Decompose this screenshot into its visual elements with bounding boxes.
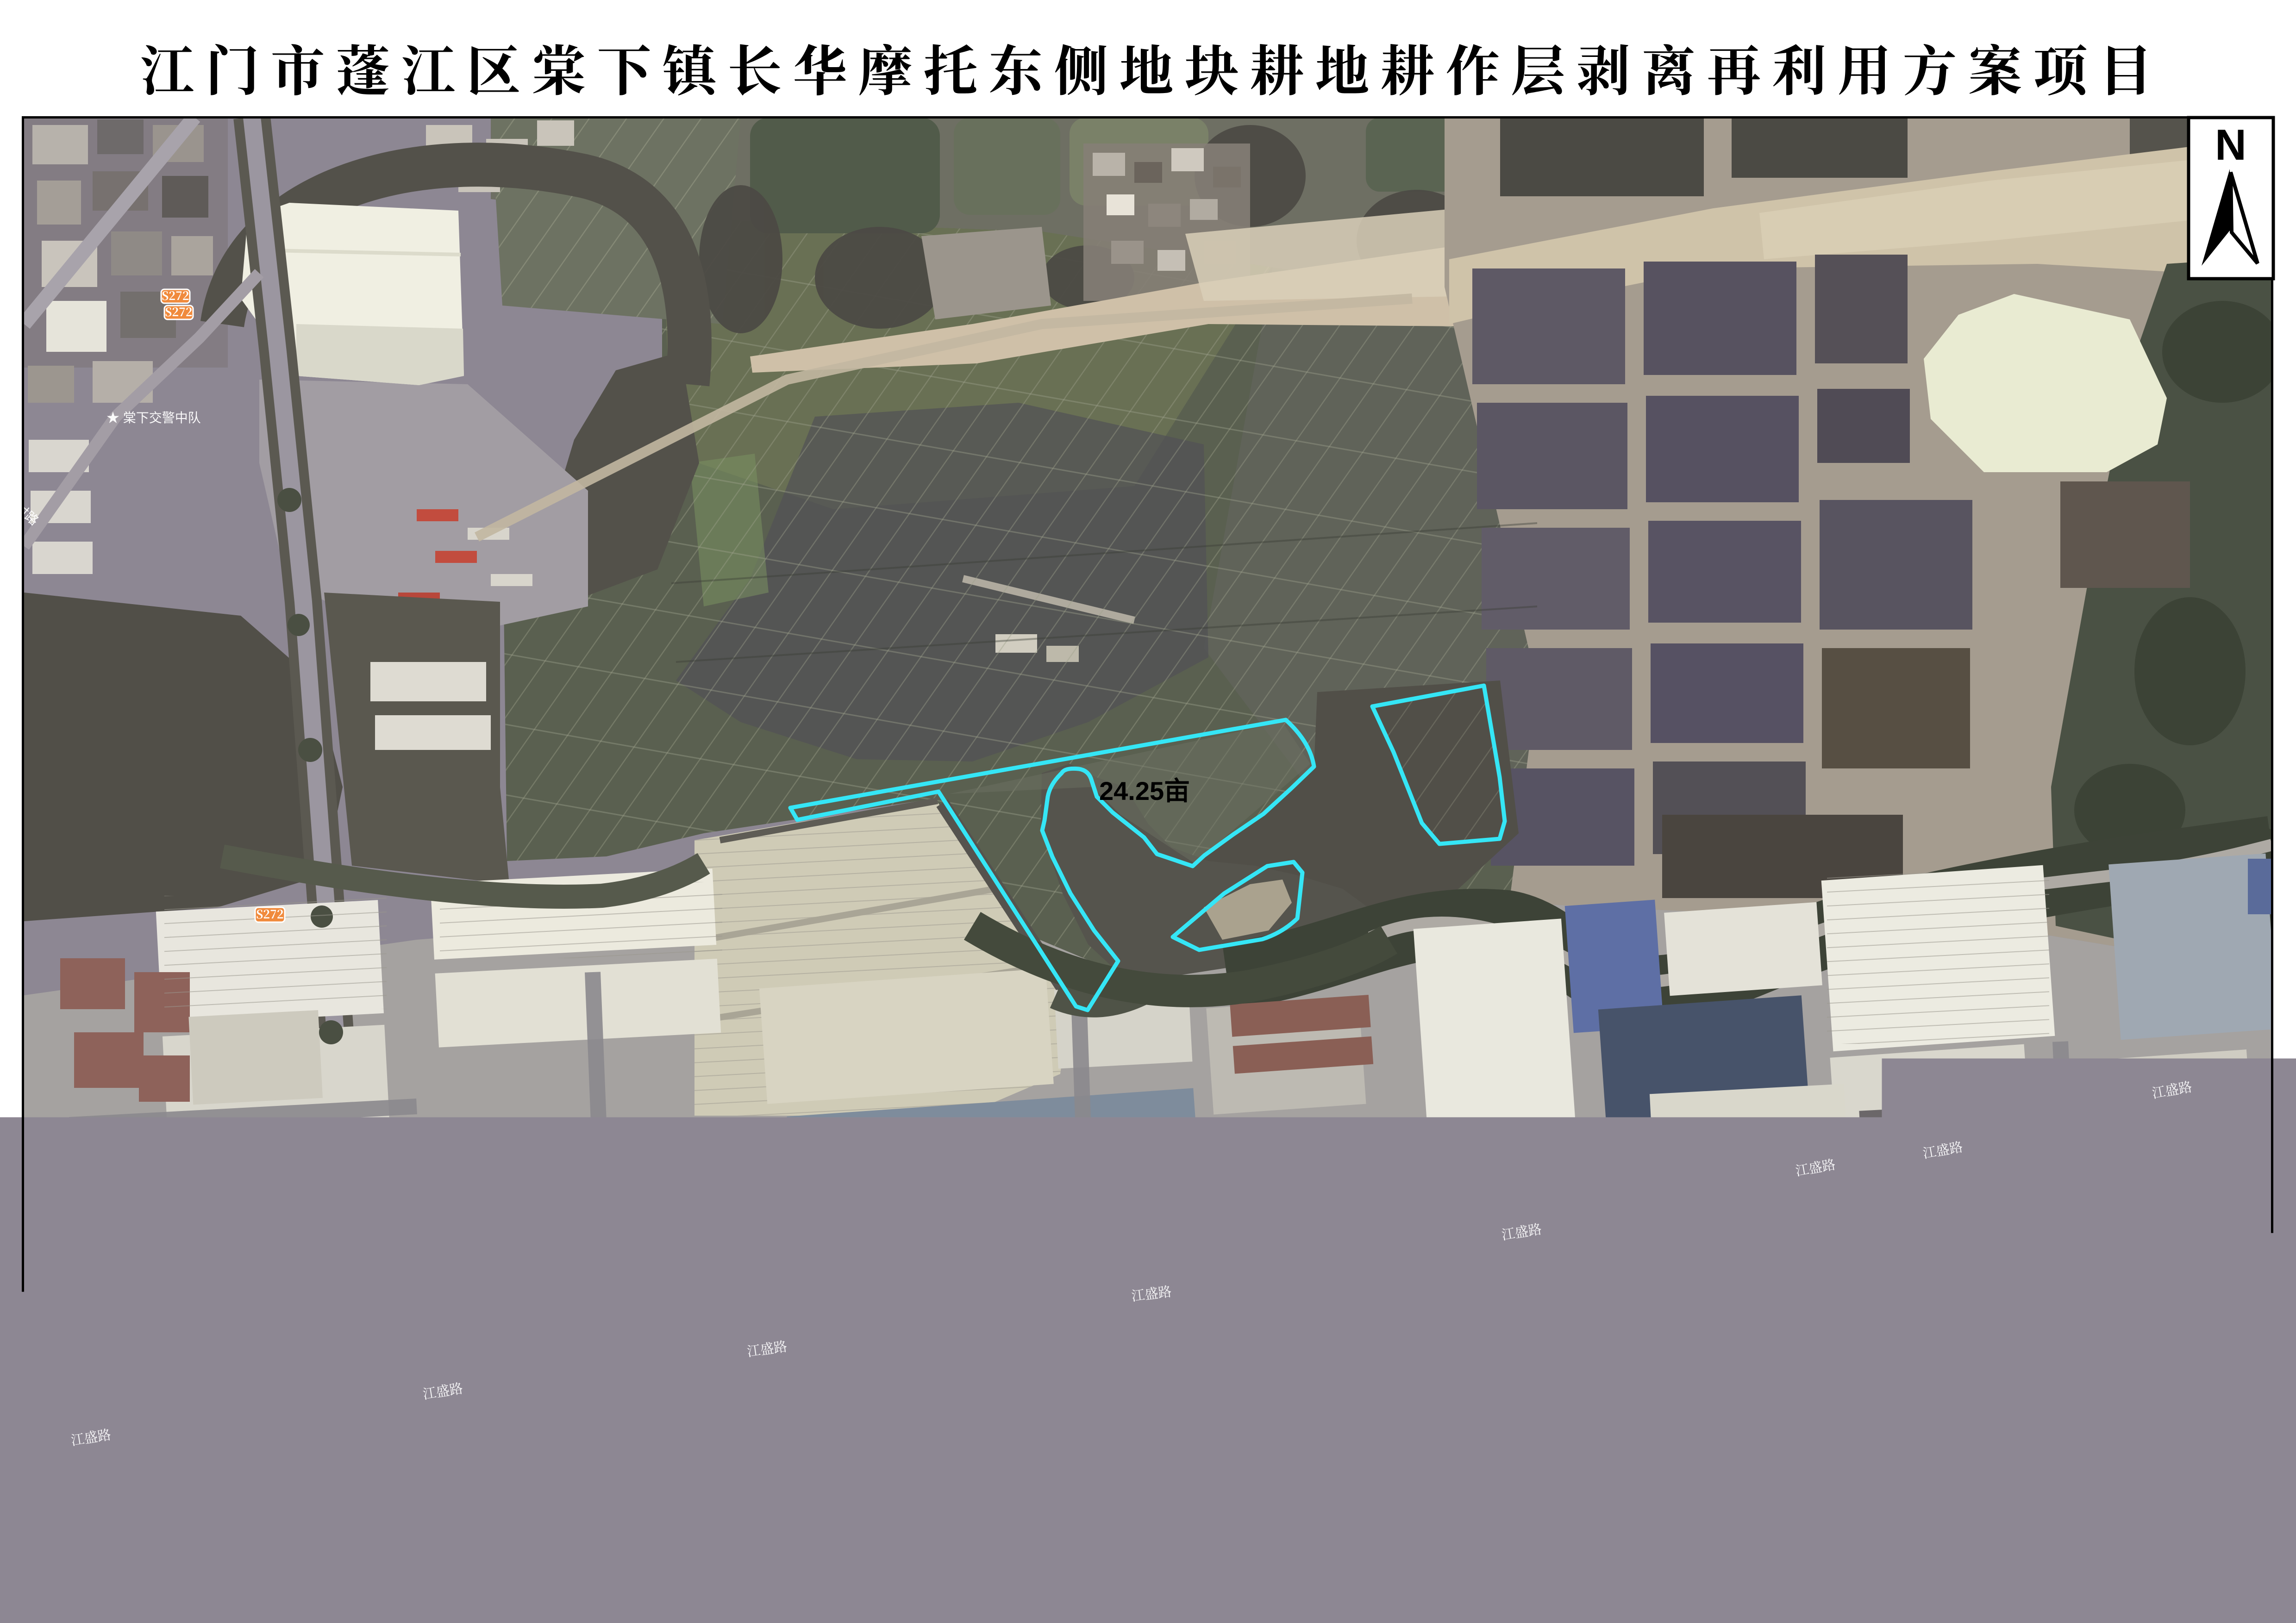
svg-text:一路 步岭一路: 一路 步岭一路 [24, 1252, 112, 1266]
svg-text:★ 棠下交警中队: ★ 棠下交警中队 [106, 411, 201, 425]
svg-text:S272: S272 [165, 303, 192, 320]
svg-text:S272: S272 [256, 905, 283, 922]
svg-text:S272: S272 [316, 1300, 343, 1317]
svg-text:S272: S272 [162, 287, 189, 304]
svg-text:24.25亩: 24.25亩 [1099, 776, 1190, 805]
svg-text:江门市蓬江区棠下镇长华摩托东侧地块耕地耕作层剥离再利用方案项: 江门市蓬江区棠下镇长华摩托东侧地块耕地耕作层剥离再利用方案项目 [140, 28, 2164, 106]
svg-text:S272: S272 [321, 1333, 349, 1350]
svg-text:1:3,000: 1:3,000 [1024, 1555, 1125, 1589]
svg-text:N: N [2215, 120, 2246, 169]
svg-text:2025年12月: 2025年12月 [2008, 1572, 2137, 1607]
svg-text:1985国家高程基准: 1985国家高程基准 [23, 1570, 212, 1604]
